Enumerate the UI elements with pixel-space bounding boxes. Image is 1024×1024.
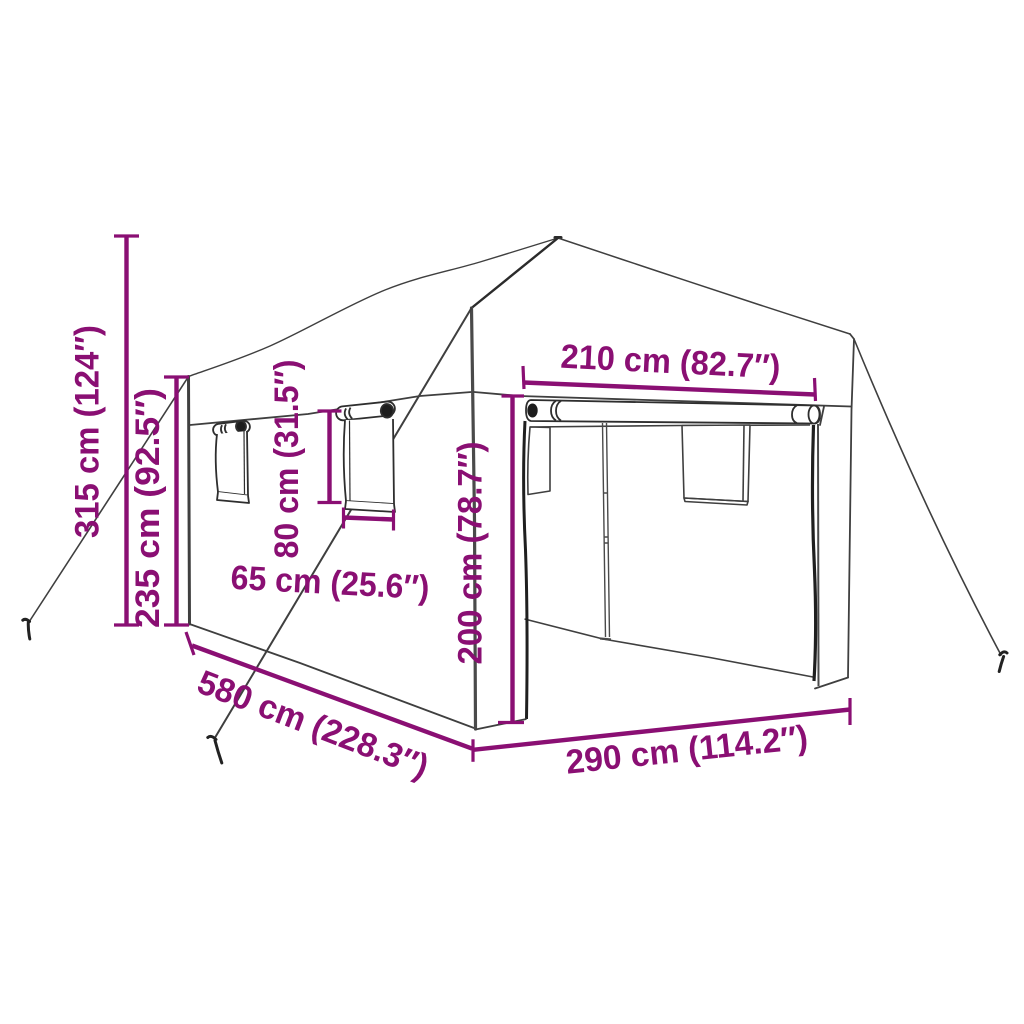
svg-text:315 cm (124″): 315 cm (124″) xyxy=(69,325,107,538)
svg-text:235 cm (92.5″): 235 cm (92.5″) xyxy=(129,388,167,628)
svg-text:80 cm (31.5″): 80 cm (31.5″) xyxy=(268,360,306,559)
svg-text:200 cm (78.7″): 200 cm (78.7″) xyxy=(452,442,490,665)
